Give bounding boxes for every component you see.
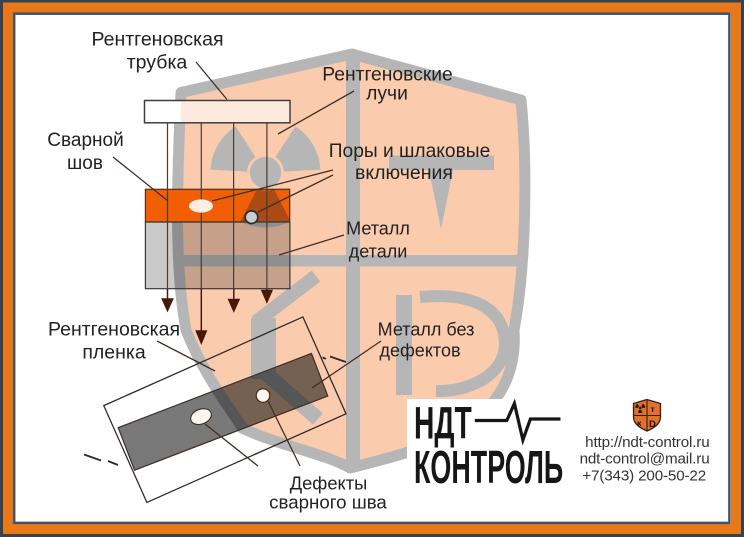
svg-text:Сварной: Сварной [47, 130, 123, 151]
svg-text:детали: детали [349, 242, 408, 262]
svg-text:Металл без: Металл без [378, 320, 475, 340]
svg-text:пленка: пленка [82, 342, 146, 364]
svg-text:http://ndt-control.ru: http://ndt-control.ru [585, 434, 709, 451]
svg-text:Дефекты: Дефекты [290, 473, 367, 494]
svg-text:шов: шов [67, 153, 103, 174]
svg-text:сварного шва: сварного шва [269, 492, 387, 513]
svg-text:т: т [651, 404, 655, 414]
svg-text:включения: включения [355, 162, 453, 184]
svg-text:Металл: Металл [346, 219, 410, 239]
svg-text:КОНТРОЛЬ: КОНТРОЛЬ [414, 441, 563, 492]
svg-text:трубка: трубка [127, 52, 188, 74]
svg-text:к: к [637, 418, 642, 428]
svg-text:ndt-control@mail.ru: ndt-control@mail.ru [580, 451, 710, 468]
svg-text:лучи: лучи [366, 84, 408, 105]
svg-text:Рентгеновская: Рентгеновская [48, 319, 180, 341]
svg-text:Рентгеновские: Рентгеновские [322, 65, 453, 86]
svg-text:Рентгеновская: Рентгеновская [91, 29, 223, 51]
svg-text:Поры и шлаковые: Поры и шлаковые [329, 141, 491, 162]
svg-text:дефектов: дефектов [379, 341, 460, 361]
svg-text:+7(343) 200-50-22: +7(343) 200-50-22 [582, 468, 706, 485]
svg-text:D: D [649, 419, 656, 430]
